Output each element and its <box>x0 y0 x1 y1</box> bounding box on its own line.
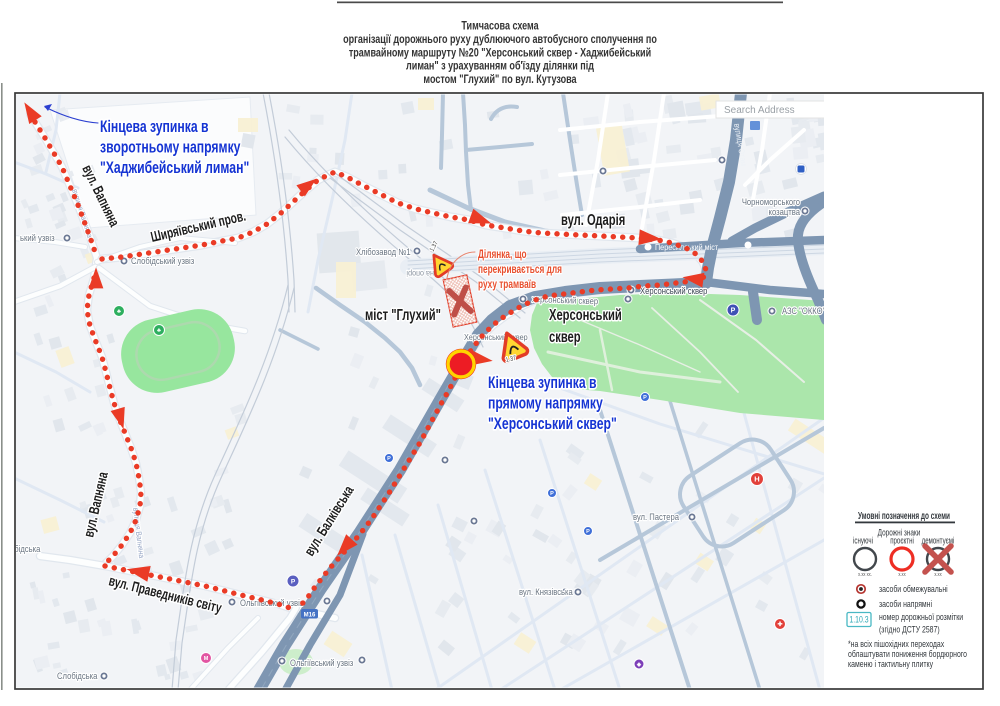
svg-text:перекривається для: перекривається для <box>478 264 562 277</box>
svg-text:P: P <box>731 308 736 315</box>
svg-text:Ділянка, що: Ділянка, що <box>478 249 527 262</box>
svg-text:козацтва: козацтва <box>769 206 801 217</box>
svg-text:трамвайному маршруту №20 "Херс: трамвайному маршруту №20 "Херсонський ск… <box>349 46 651 60</box>
svg-text:Тимчасова схема: Тимчасова схема <box>461 19 539 33</box>
svg-text:М16: М16 <box>304 613 316 619</box>
svg-text:ький узвіз: ький узвіз <box>20 232 55 243</box>
svg-text:АЗС "ОККО": АЗС "ОККО" <box>782 305 825 316</box>
svg-text:(згідно ДСТУ 2587): (згідно ДСТУ 2587) <box>879 625 940 635</box>
svg-text:P: P <box>586 529 590 535</box>
svg-text:Умовні позначення до схеми: Умовні позначення до схеми <box>858 510 950 522</box>
svg-text:♣: ♣ <box>157 328 161 334</box>
svg-text:вул. Князівська: вул. Князівська <box>519 586 573 597</box>
svg-text:Ольгіївський узвіз: Ольгіївський узвіз <box>290 657 353 668</box>
svg-text:♣: ♣ <box>117 309 121 315</box>
svg-text:Search Address: Search Address <box>724 105 795 116</box>
svg-text:облаштувати пониження бордюрно: облаштувати пониження бордюрного <box>848 649 967 659</box>
svg-text:Кінцева зупинка в: Кінцева зупинка в <box>100 118 209 136</box>
svg-text:М: М <box>204 656 209 662</box>
svg-text:*на всіх пішохідних переходах: *на всіх пішохідних переходах <box>848 639 944 649</box>
svg-text:Слобідський узвіз: Слобідський узвіз <box>131 255 194 266</box>
svg-text:х.хх: х.хх <box>898 573 906 579</box>
svg-text:мостом "Глухий" по вул. Кутузо: мостом "Глухий" по вул. Кутузова <box>423 73 577 87</box>
svg-text:P: P <box>387 456 391 462</box>
svg-text:руху трамваїв: руху трамваїв <box>478 279 536 292</box>
svg-text:номер дорожньої розмітки: номер дорожньої розмітки <box>879 612 963 622</box>
svg-text:вул. Пастера: вул. Пастера <box>633 511 679 522</box>
svg-text:існуючі: існуючі <box>853 535 873 545</box>
svg-text:Кінцева зупинка в: Кінцева зупинка в <box>488 374 597 392</box>
svg-text:каменю і тактильну плитку: каменю і тактильну плитку <box>848 659 934 669</box>
svg-text:"Хаджибейський лиман": "Хаджибейський лиман" <box>100 159 249 177</box>
svg-text:міст "Глухий": міст "Глухий" <box>365 305 441 324</box>
svg-text:1.10.3: 1.10.3 <box>849 615 869 625</box>
svg-text:вул. Одарія: вул. Одарія <box>561 210 625 229</box>
svg-text:H: H <box>754 475 759 484</box>
svg-text:засоби напрямні: засоби напрямні <box>879 599 932 609</box>
svg-text:на опорі: на опорі <box>406 269 434 279</box>
svg-text:✚: ✚ <box>777 621 782 628</box>
svg-text:х.хх хх.: х.хх хх. <box>858 573 872 579</box>
svg-text:Р: Р <box>291 578 296 585</box>
svg-text:лиман" з урахуванням об'їзду д: лиман" з урахуванням об'їзду ділянки під <box>406 59 594 73</box>
svg-text:Херсонський: Херсонський <box>549 305 622 324</box>
svg-text:зворотньому напрямку: зворотньому напрямку <box>100 139 240 157</box>
svg-text:Хлібозавод №1: Хлібозавод №1 <box>356 246 411 257</box>
svg-text:Слобідська: Слобідська <box>57 670 98 681</box>
svg-text:сквер: сквер <box>549 327 581 346</box>
svg-text:◈: ◈ <box>636 661 642 668</box>
svg-text:P: P <box>550 491 554 497</box>
svg-text:P: P <box>643 395 647 401</box>
svg-text:проєктні: проєктні <box>890 535 914 545</box>
svg-text:прямому напрямку: прямому напрямку <box>488 395 603 413</box>
svg-text:організації дорожнього руху ду: організації дорожнього руху дублюючого а… <box>343 33 657 47</box>
svg-text:х.хх: х.хх <box>934 573 942 579</box>
svg-text:засоби обмежувальні: засоби обмежувальні <box>879 584 948 594</box>
svg-text:"Херсонський сквер": "Херсонський сквер" <box>488 415 617 433</box>
